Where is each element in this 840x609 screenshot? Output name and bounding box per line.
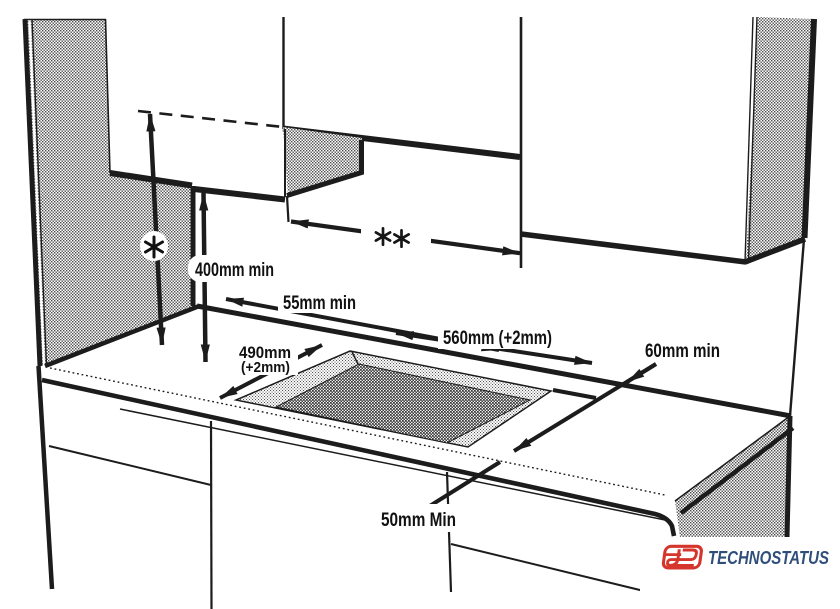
svg-text:(+2mm): (+2mm) bbox=[241, 359, 290, 376]
svg-text:TECHNOSTATUS: TECHNOSTATUS bbox=[708, 547, 830, 568]
svg-text:560mm (+2mm): 560mm (+2mm) bbox=[443, 328, 552, 349]
svg-text:50mm Min: 50mm Min bbox=[381, 510, 456, 531]
svg-text:400mm min: 400mm min bbox=[195, 260, 274, 281]
svg-text:60mm min: 60mm min bbox=[645, 341, 720, 362]
svg-text:55mm min: 55mm min bbox=[283, 293, 356, 314]
